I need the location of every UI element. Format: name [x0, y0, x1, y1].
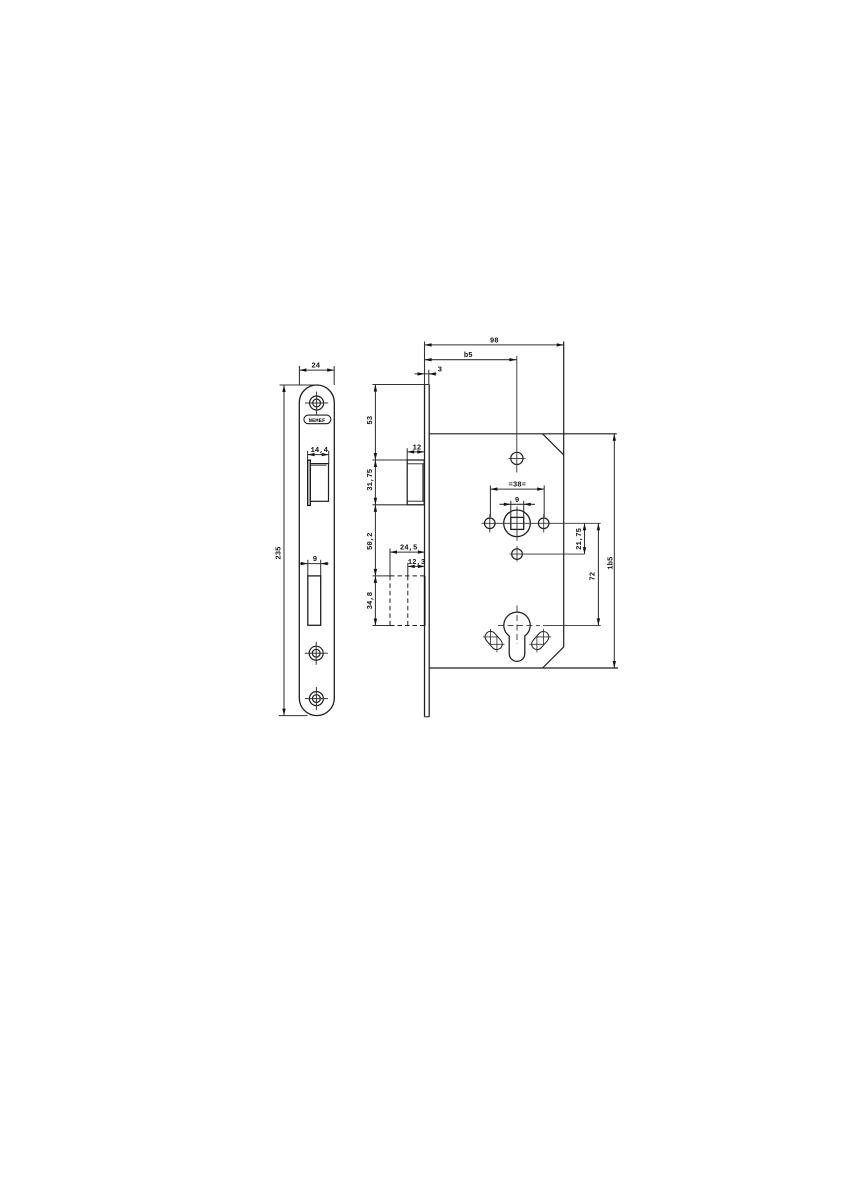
- svg-text:50,2: 50,2: [367, 532, 375, 550]
- svg-text:24,5: 24,5: [400, 545, 418, 553]
- svg-text:31,75: 31,75: [367, 469, 375, 491]
- svg-text:12,3: 12,3: [408, 559, 426, 567]
- svg-text:NEMEF: NEMEF: [309, 417, 326, 424]
- svg-text:b5: b5: [464, 352, 473, 360]
- svg-text:53: 53: [367, 415, 375, 424]
- svg-text:9: 9: [515, 497, 519, 505]
- svg-text:14,4: 14,4: [311, 447, 329, 455]
- svg-text:235: 235: [276, 546, 284, 559]
- svg-text:1b5: 1b5: [607, 557, 615, 570]
- svg-text:12: 12: [413, 444, 422, 452]
- svg-text:9: 9: [313, 556, 317, 564]
- svg-text:72: 72: [590, 572, 598, 581]
- svg-text:21,75: 21,75: [576, 528, 584, 550]
- svg-text:3: 3: [438, 367, 443, 375]
- svg-text:34,8: 34,8: [367, 592, 375, 610]
- svg-text:98: 98: [490, 337, 499, 345]
- svg-text:24: 24: [311, 362, 320, 370]
- svg-text:=38=: =38=: [508, 482, 526, 490]
